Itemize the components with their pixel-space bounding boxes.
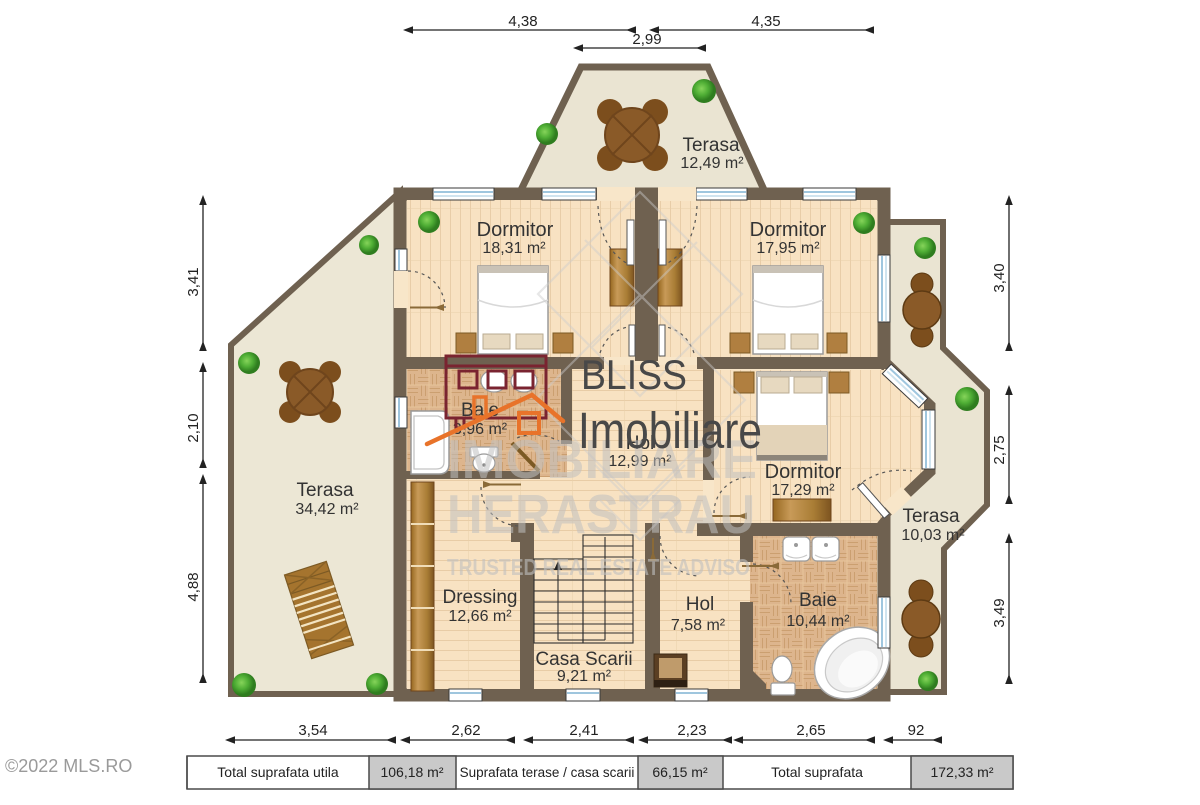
svg-text:3,40: 3,40 xyxy=(991,263,1008,292)
svg-text:2,75: 2,75 xyxy=(991,435,1008,464)
svg-text:2,23: 2,23 xyxy=(677,722,706,739)
svg-text:Terasa: Terasa xyxy=(682,135,739,156)
svg-text:Casa Scarii: Casa Scarii xyxy=(535,649,632,670)
svg-text:Imobiliare: Imobiliare xyxy=(578,402,762,459)
svg-text:3,54: 3,54 xyxy=(298,722,327,739)
svg-text:Suprafata terase / casa scarii: Suprafata terase / casa scarii xyxy=(460,765,635,780)
svg-text:3,41: 3,41 xyxy=(185,267,202,296)
svg-text:Dormitor: Dormitor xyxy=(477,219,554,241)
svg-text:2,99: 2,99 xyxy=(632,31,661,48)
svg-text:4,88: 4,88 xyxy=(185,572,202,601)
svg-text:Total suprafata: Total suprafata xyxy=(771,764,863,780)
svg-text:12,66 m²: 12,66 m² xyxy=(448,608,512,625)
svg-text:10,03 m²: 10,03 m² xyxy=(901,527,965,544)
svg-text:2,10: 2,10 xyxy=(185,413,202,442)
svg-text:66,15 m²: 66,15 m² xyxy=(652,764,708,780)
svg-text:92: 92 xyxy=(908,722,925,739)
svg-text:4,38: 4,38 xyxy=(508,13,537,30)
svg-text:10,44 m²: 10,44 m² xyxy=(786,613,850,630)
svg-text:Terasa: Terasa xyxy=(296,480,353,501)
svg-text:172,33 m²: 172,33 m² xyxy=(930,764,993,780)
svg-text:17,29 m²: 17,29 m² xyxy=(771,482,835,499)
svg-text:12,49 m²: 12,49 m² xyxy=(680,155,744,172)
svg-text:18,31 m²: 18,31 m² xyxy=(482,240,546,257)
svg-text:Dormitor: Dormitor xyxy=(750,219,827,241)
svg-text:3,49: 3,49 xyxy=(991,598,1008,627)
svg-text:BLISS: BLISS xyxy=(581,351,687,398)
svg-text:106,18 m²: 106,18 m² xyxy=(380,764,443,780)
svg-text:9,21 m²: 9,21 m² xyxy=(557,668,612,685)
svg-text:Dormitor: Dormitor xyxy=(765,461,842,483)
svg-text:4,35: 4,35 xyxy=(751,13,780,30)
svg-text:Hol: Hol xyxy=(686,594,715,615)
svg-text:2,41: 2,41 xyxy=(569,722,598,739)
svg-text:HERASTRAU: HERASTRAU xyxy=(447,483,755,545)
svg-text:TRUSTED REAL ESTATE ADVISO: TRUSTED REAL ESTATE ADVISO xyxy=(447,554,750,580)
svg-text:2,62: 2,62 xyxy=(451,722,480,739)
svg-text:Dressing: Dressing xyxy=(443,587,518,608)
svg-text:7,58 m²: 7,58 m² xyxy=(671,617,726,634)
svg-text:34,42 m²: 34,42 m² xyxy=(295,501,359,518)
svg-text:17,95 m²: 17,95 m² xyxy=(756,240,820,257)
svg-text:2,65: 2,65 xyxy=(796,722,825,739)
svg-text:Terasa: Terasa xyxy=(902,506,959,527)
svg-text:©2022 MLS.RO: ©2022 MLS.RO xyxy=(5,756,132,776)
svg-text:Total suprafata utila: Total suprafata utila xyxy=(217,764,339,780)
svg-text:Baie: Baie xyxy=(799,590,837,611)
